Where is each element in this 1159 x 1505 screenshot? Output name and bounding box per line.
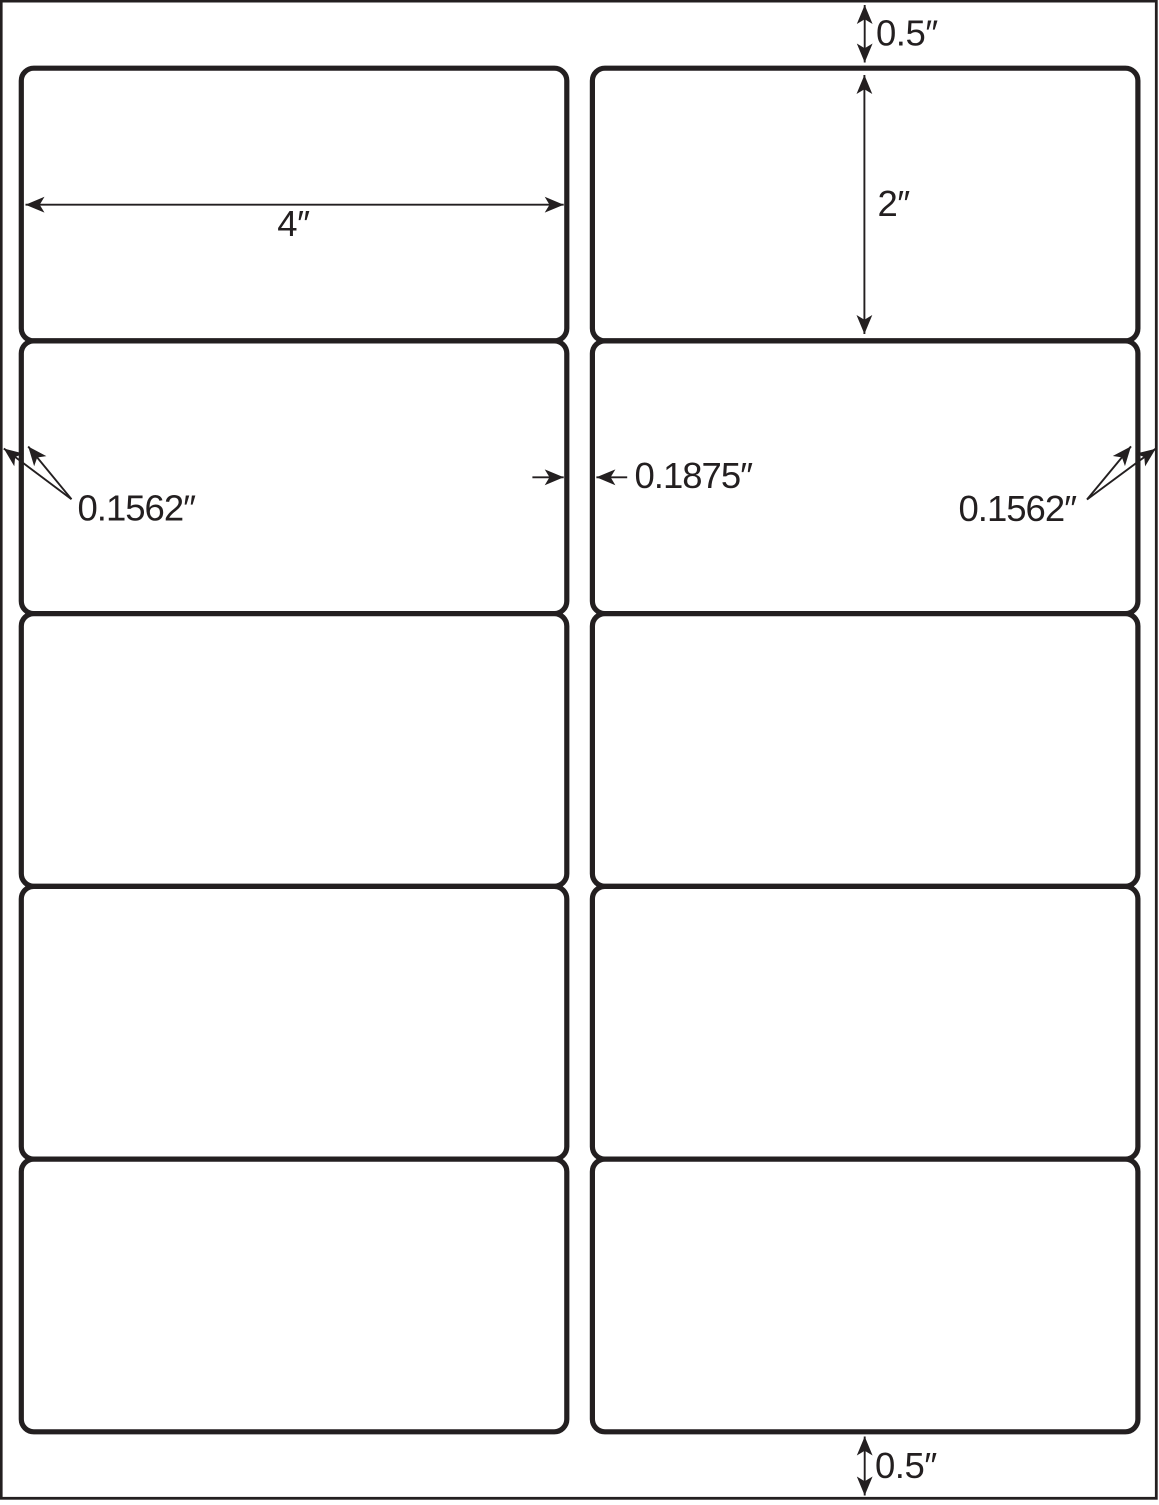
- svg-text:4″: 4″: [277, 203, 310, 244]
- svg-text:0.1875″: 0.1875″: [635, 455, 754, 496]
- svg-text:0.5″: 0.5″: [875, 1445, 937, 1486]
- svg-text:0.5″: 0.5″: [876, 13, 938, 54]
- svg-text:2″: 2″: [878, 183, 911, 224]
- svg-text:0.1562″: 0.1562″: [78, 488, 197, 529]
- svg-text:0.1562″: 0.1562″: [959, 488, 1078, 529]
